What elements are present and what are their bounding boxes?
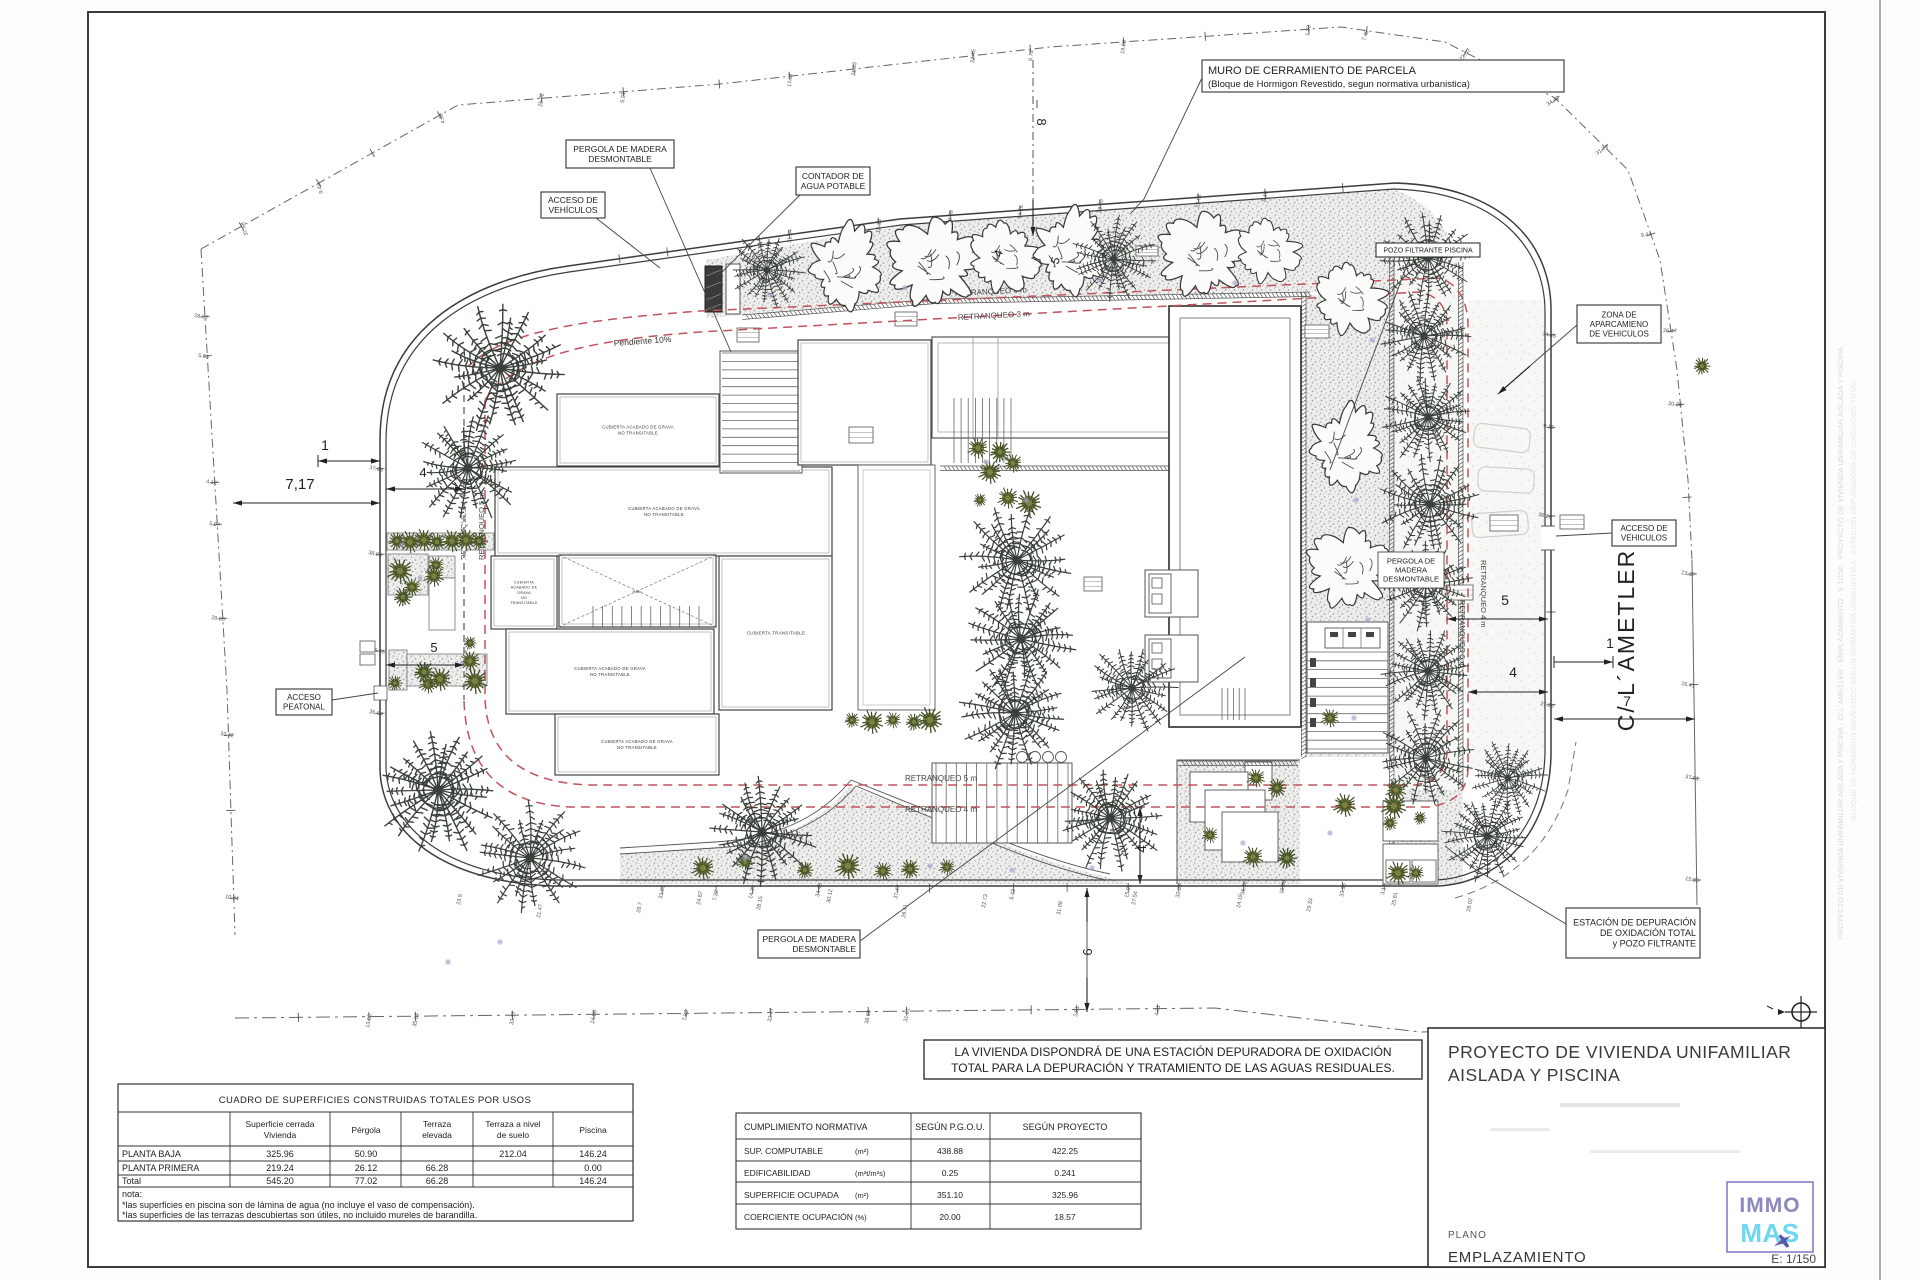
svg-text:4: 4 <box>1509 664 1517 680</box>
svg-text:7,17: 7,17 <box>285 476 314 493</box>
svg-text:20.00: 20.00 <box>939 1212 961 1222</box>
svg-text:EMPLAZAMIENTO: EMPLAZAMIENTO <box>1448 1249 1586 1266</box>
svg-text:NO: NO <box>521 596 527 600</box>
svg-text:545.20: 545.20 <box>266 1176 294 1186</box>
svg-text:Piscina: Piscina <box>579 1125 607 1135</box>
svg-text:0.25: 0.25 <box>942 1168 959 1178</box>
svg-text:50.90: 50.90 <box>355 1149 378 1159</box>
svg-text:NO TRANSITABLE: NO TRANSITABLE <box>644 512 684 517</box>
svg-text:PERGOLA DE: PERGOLA DE <box>1387 557 1435 566</box>
svg-text:Superficie cerrada: Superficie cerrada <box>246 1119 315 1129</box>
svg-text:RETRANQUEO 4 m: RETRANQUEO 4 m <box>1479 560 1488 628</box>
svg-text:SUPERFICIE OCUPADA: SUPERFICIE OCUPADA <box>744 1190 839 1200</box>
svg-text:GRAVA: GRAVA <box>517 591 531 595</box>
svg-text:NO TRANSITABLE: NO TRANSITABLE <box>617 745 657 750</box>
svg-text:Terraza a nivel: Terraza a nivel <box>485 1119 540 1129</box>
svg-text:CUBIERTA ACABADO DE GRAVA: CUBIERTA ACABADO DE GRAVA <box>601 739 673 744</box>
svg-text:RETRANQUEO 5 m: RETRANQUEO 5 m <box>1458 600 1467 668</box>
svg-text:Patio: Patio <box>632 589 642 594</box>
svg-text:NO TRANSITABLE: NO TRANSITABLE <box>590 672 630 677</box>
svg-text:VEHÍCULOS: VEHÍCULOS <box>548 205 597 215</box>
svg-text:CUBIERTA TRANSITABLE: CUBIERTA TRANSITABLE <box>747 631 805 636</box>
svg-text:DE VEHICULOS: DE VEHICULOS <box>1589 329 1649 338</box>
svg-text:(m²): (m²) <box>855 1191 869 1200</box>
svg-text:SEGÚN P.G.O.U.: SEGÚN P.G.O.U. <box>915 1122 985 1132</box>
svg-text:CUBIERTA ACABADO DE GRAVA: CUBIERTA ACABADO DE GRAVA <box>574 666 646 671</box>
svg-text:SUP. COMPUTABLE: SUP. COMPUTABLE <box>744 1146 823 1156</box>
svg-text:Vivienda: Vivienda <box>264 1130 297 1140</box>
svg-text:ESTACIÓN DE DEPURACIÓN: ESTACIÓN DE DEPURACIÓN <box>1573 918 1696 928</box>
svg-text:MAS: MAS <box>1740 1218 1799 1248</box>
svg-text:0.241: 0.241 <box>1054 1168 1076 1178</box>
svg-text:BLOQUE DE HORMIGON REVESTIDO S: BLOQUE DE HORMIGON REVESTIDO SEGUN NORMA… <box>1849 380 1858 821</box>
svg-text:6.73: 6.73 <box>1028 50 1035 61</box>
svg-text:SEGÚN PROYECTO: SEGÚN PROYECTO <box>1023 1122 1108 1132</box>
svg-text:DE OXIDACIÓN TOTAL: DE OXIDACIÓN TOTAL <box>1600 928 1696 938</box>
svg-text:MURO DE CERRAMIENTO DE PARCELA: MURO DE CERRAMIENTO DE PARCELA <box>1208 65 1417 77</box>
svg-text:1: 1 <box>321 437 329 453</box>
svg-text:ACABADO DE: ACABADO DE <box>511 586 538 590</box>
svg-text:MADERA: MADERA <box>1395 566 1427 575</box>
svg-text:Total: Total <box>122 1176 141 1186</box>
svg-text:de suelo: de suelo <box>497 1130 529 1140</box>
svg-text:(%): (%) <box>855 1213 867 1222</box>
svg-text:PROYECTO DE VIVIENDA UNIFAMIL: PROYECTO DE VIVIENDA UNIFAMILIAR <box>1448 1042 1791 1062</box>
svg-text:CUMPLIMIENTO NORMATIVA: CUMPLIMIENTO NORMATIVA <box>744 1122 868 1132</box>
svg-text:325.96: 325.96 <box>266 1149 294 1159</box>
svg-text:NO TRANSITABLE: NO TRANSITABLE <box>618 430 658 435</box>
svg-text:PLANO: PLANO <box>1448 1230 1487 1241</box>
svg-text:PROYECTO DE VIVIENDA UNIFAMILI: PROYECTO DE VIVIENDA UNIFAMILIAR AISLADA… <box>1836 347 1845 939</box>
svg-text:elevada: elevada <box>422 1130 452 1140</box>
svg-text:5: 5 <box>430 640 437 655</box>
svg-text:RETRANQUEO 4 m: RETRANQUEO 4 m <box>905 805 977 814</box>
svg-text:LA VIVIENDA DISPONDRÁ DE UNA E: LA VIVIENDA DISPONDRÁ DE UNA ESTACIÓN DE… <box>954 1044 1391 1059</box>
svg-text:CUBIERTA ACABADO DE GRAVA: CUBIERTA ACABADO DE GRAVA <box>628 506 700 511</box>
svg-text:18.57: 18.57 <box>1054 1212 1076 1222</box>
svg-text:(m²t/m²s): (m²t/m²s) <box>855 1169 886 1178</box>
svg-text:66.28: 66.28 <box>426 1176 449 1186</box>
svg-text:EDIFICABILIDAD: EDIFICABILIDAD <box>744 1168 811 1178</box>
svg-text:26.12: 26.12 <box>355 1163 378 1173</box>
svg-text:PLANTA PRIMERA: PLANTA PRIMERA <box>122 1163 199 1173</box>
svg-text:AGUA POTABLE: AGUA POTABLE <box>801 181 866 191</box>
svg-text:ACCESO: ACCESO <box>287 693 321 702</box>
svg-text:219.24: 219.24 <box>266 1163 294 1173</box>
svg-text:C/ L´AMETLER: C/ L´AMETLER <box>1613 549 1639 731</box>
svg-text:*las superficies en piscina so: *las superficies en piscina son de lámin… <box>122 1200 475 1210</box>
svg-text:IMMO: IMMO <box>1739 1194 1800 1217</box>
svg-text:66.28: 66.28 <box>426 1163 449 1173</box>
svg-text:351.10: 351.10 <box>937 1190 963 1200</box>
svg-text:y POZO FILTRANTE: y POZO FILTRANTE <box>1613 939 1696 949</box>
svg-text:*las superficies de las terraz: *las superficies de las terrazas descubi… <box>122 1210 477 1220</box>
svg-text:8: 8 <box>1034 118 1049 125</box>
svg-text:AISLADA Y PISCINA: AISLADA Y PISCINA <box>1448 1065 1620 1085</box>
svg-text:TOTAL PARA LA DEPURACIÓN Y TRA: TOTAL PARA LA DEPURACIÓN Y TRATAMIENTO D… <box>951 1060 1395 1075</box>
svg-text:TRANSITABLE: TRANSITABLE <box>510 601 538 605</box>
svg-text:146.24: 146.24 <box>579 1176 607 1186</box>
svg-text:PEATONAL: PEATONAL <box>283 703 325 712</box>
svg-text:4: 4 <box>419 465 426 480</box>
svg-text:Pérgola: Pérgola <box>351 1125 381 1135</box>
svg-text:DESMONTABLE: DESMONTABLE <box>1383 575 1439 584</box>
svg-text:VEHICULOS: VEHICULOS <box>1621 534 1667 543</box>
svg-text:ACCESO DE: ACCESO DE <box>1620 524 1667 533</box>
svg-text:RETRANQUEO 5 m: RETRANQUEO 5 m <box>905 774 977 783</box>
svg-text:ACCESO DE: ACCESO DE <box>548 195 598 205</box>
svg-text:POZO FILTRANTE PISCINA: POZO FILTRANTE PISCINA <box>1383 247 1473 254</box>
svg-text:Terraza: Terraza <box>423 1119 452 1129</box>
svg-text:CONTADOR DE: CONTADOR DE <box>802 171 865 181</box>
svg-text:325.96: 325.96 <box>1052 1190 1078 1200</box>
svg-text:77.02: 77.02 <box>355 1176 378 1186</box>
svg-text:ZONA DE: ZONA DE <box>1601 310 1636 319</box>
svg-text:PERGOLA DE MADERA: PERGOLA DE MADERA <box>573 144 667 154</box>
svg-text:0.00: 0.00 <box>584 1163 602 1173</box>
svg-text:438.88: 438.88 <box>937 1146 963 1156</box>
svg-text:COERCIENTE OCUPACIÓN: COERCIENTE OCUPACIÓN <box>744 1212 853 1222</box>
svg-text:PLANTA BAJA: PLANTA BAJA <box>122 1149 181 1159</box>
svg-text:146.24: 146.24 <box>579 1149 607 1159</box>
svg-text:5: 5 <box>1501 592 1509 608</box>
svg-text:(m²): (m²) <box>855 1147 869 1156</box>
svg-text:APARCAMIENO: APARCAMIENO <box>1590 320 1649 329</box>
svg-text:E: 1/150: E: 1/150 <box>1771 1252 1816 1266</box>
svg-text:nota:: nota: <box>122 1189 142 1199</box>
svg-text:4: 4 <box>1134 845 1149 852</box>
svg-text:(Bloque de Hormigon Revestido,: (Bloque de Hormigon Revestido, segun nor… <box>1208 79 1470 90</box>
svg-text:PERGOLA DE MADERA: PERGOLA DE MADERA <box>762 934 856 944</box>
svg-text:6: 6 <box>1080 948 1095 955</box>
svg-text:422.25: 422.25 <box>1052 1146 1078 1156</box>
svg-text:DESMONTABLE: DESMONTABLE <box>792 944 856 954</box>
svg-text:CUBIERTA: CUBIERTA <box>514 581 535 585</box>
svg-text:DESMONTABLE: DESMONTABLE <box>588 154 652 164</box>
svg-text:26.47: 26.47 <box>1663 328 1677 335</box>
svg-text:CUBIERTA ACABADO DE GRAVA: CUBIERTA ACABADO DE GRAVA <box>602 425 674 430</box>
svg-text:CUADRO DE SUPERFICIES CONSTRUI: CUADRO DE SUPERFICIES CONSTRUIDAS TOTALE… <box>219 1095 531 1106</box>
svg-text:212.04: 212.04 <box>499 1149 527 1159</box>
